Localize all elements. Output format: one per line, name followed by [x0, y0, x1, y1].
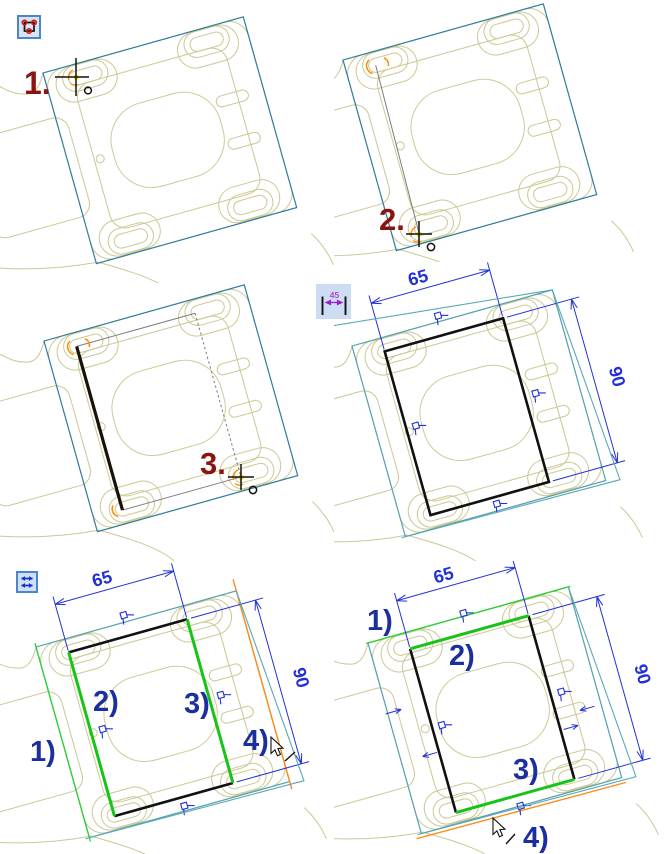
- svg-text:2.: 2.: [379, 202, 405, 237]
- svg-text:1): 1): [30, 736, 56, 768]
- svg-text:1.: 1.: [24, 65, 51, 101]
- svg-text:3): 3): [184, 688, 210, 720]
- svg-text:2): 2): [93, 686, 119, 718]
- svg-text:1): 1): [367, 605, 393, 637]
- svg-text:3.: 3.: [200, 446, 226, 481]
- svg-text:45: 45: [330, 290, 340, 300]
- svg-text:4): 4): [243, 725, 269, 757]
- svg-text:3): 3): [513, 754, 539, 786]
- svg-text:4): 4): [523, 822, 549, 854]
- svg-text:2): 2): [449, 640, 475, 672]
